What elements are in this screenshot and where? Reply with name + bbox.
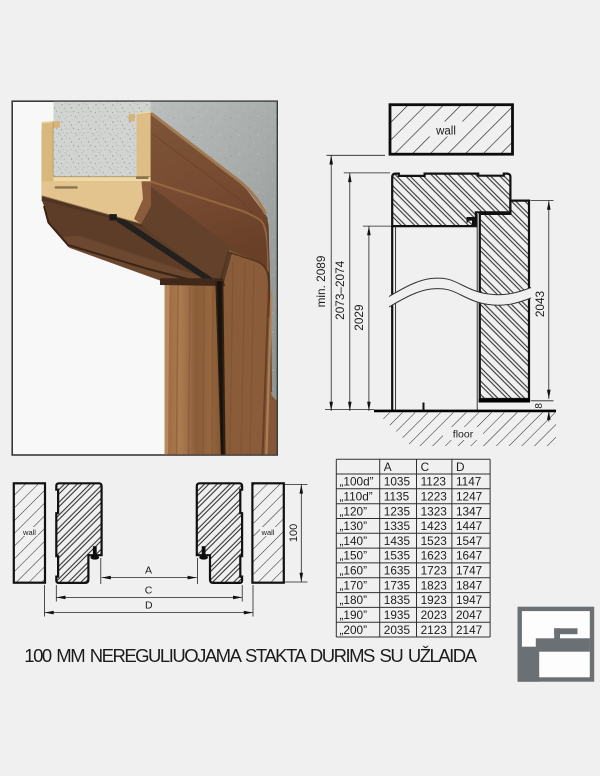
svg-text:floor: floor [453,429,474,441]
svg-text:1523: 1523 [421,534,448,548]
svg-text:A: A [384,460,392,474]
svg-text:1535: 1535 [384,549,411,563]
svg-text:„200”: „200” [340,623,368,637]
svg-text:C: C [145,584,153,596]
svg-text:1235: 1235 [384,504,411,518]
svg-text:1735: 1735 [384,578,411,592]
svg-text:„190”: „190” [340,608,368,622]
svg-text:„140”: „140” [340,534,368,548]
svg-text:1335: 1335 [384,519,411,533]
svg-text:„120”: „120” [340,504,368,518]
svg-text:2023: 2023 [421,608,448,622]
svg-text:1147: 1147 [456,475,481,489]
svg-text:„160”: „160” [340,564,368,578]
svg-text:1647: 1647 [456,549,482,563]
svg-text:100 MM NEREGULIUOJAMA STAKTA D: 100 MM NEREGULIUOJAMA STAKTA DURIMS SU U… [24,645,477,666]
svg-text:100: 100 [288,524,300,542]
svg-text:2047: 2047 [456,608,482,622]
svg-text:„180”: „180” [340,593,368,607]
svg-text:D: D [145,600,153,612]
svg-text:1247: 1247 [456,489,482,503]
svg-text:1435: 1435 [384,534,411,548]
svg-text:1347: 1347 [456,504,482,518]
svg-text:1035: 1035 [384,475,411,489]
svg-text:„100d”: „100d” [340,475,374,489]
svg-text:1135: 1135 [384,489,410,503]
svg-text:„110d”: „110d” [340,489,373,503]
svg-text:D: D [456,460,465,474]
svg-text:1447: 1447 [456,519,482,533]
svg-text:1323: 1323 [421,504,448,518]
svg-text:1123: 1123 [421,475,447,489]
svg-text:1947: 1947 [456,593,482,607]
svg-text:1623: 1623 [421,549,448,563]
svg-text:1635: 1635 [384,564,411,578]
svg-text:1823: 1823 [421,578,448,592]
svg-text:8: 8 [534,403,545,409]
svg-text:2073–2074: 2073–2074 [333,260,347,319]
svg-text:1923: 1923 [421,593,448,607]
svg-text:„150”: „150” [340,549,368,563]
svg-text:2029: 2029 [352,304,366,330]
svg-text:wall: wall [22,528,36,537]
svg-text:2043: 2043 [533,290,547,317]
svg-text:„130”: „130” [340,519,368,533]
svg-text:1847: 1847 [456,578,482,592]
svg-text:1935: 1935 [384,608,411,622]
svg-text:2035: 2035 [384,623,411,637]
svg-text:2123: 2123 [421,623,448,637]
svg-text:1423: 1423 [421,519,448,533]
svg-text:wall: wall [435,125,456,137]
svg-text:1835: 1835 [384,593,411,607]
svg-text:1547: 1547 [456,534,482,548]
svg-text:min. 2089: min. 2089 [314,256,328,308]
svg-text:A: A [145,565,152,577]
svg-text:1747: 1747 [456,564,482,578]
svg-text:„170”: „170” [340,578,368,592]
svg-text:2147: 2147 [456,623,482,637]
svg-text:C: C [421,460,430,474]
svg-text:1723: 1723 [421,564,448,578]
svg-text:wall: wall [261,528,275,537]
svg-text:1223: 1223 [421,489,448,503]
